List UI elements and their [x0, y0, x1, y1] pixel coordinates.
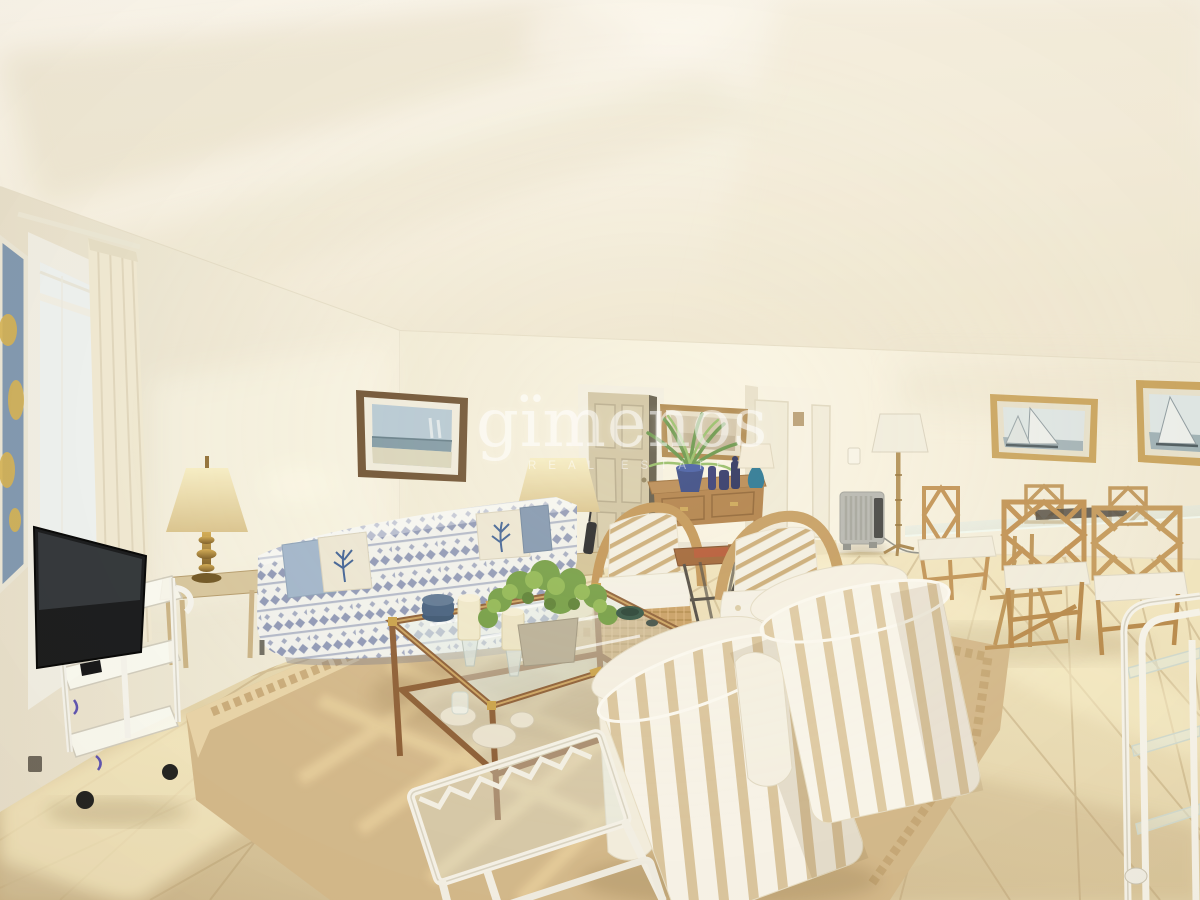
light-overlay — [0, 0, 1200, 900]
scene — [0, 0, 1200, 900]
living-room-photo: gïmenos REAL ESTATE — [0, 0, 1200, 900]
